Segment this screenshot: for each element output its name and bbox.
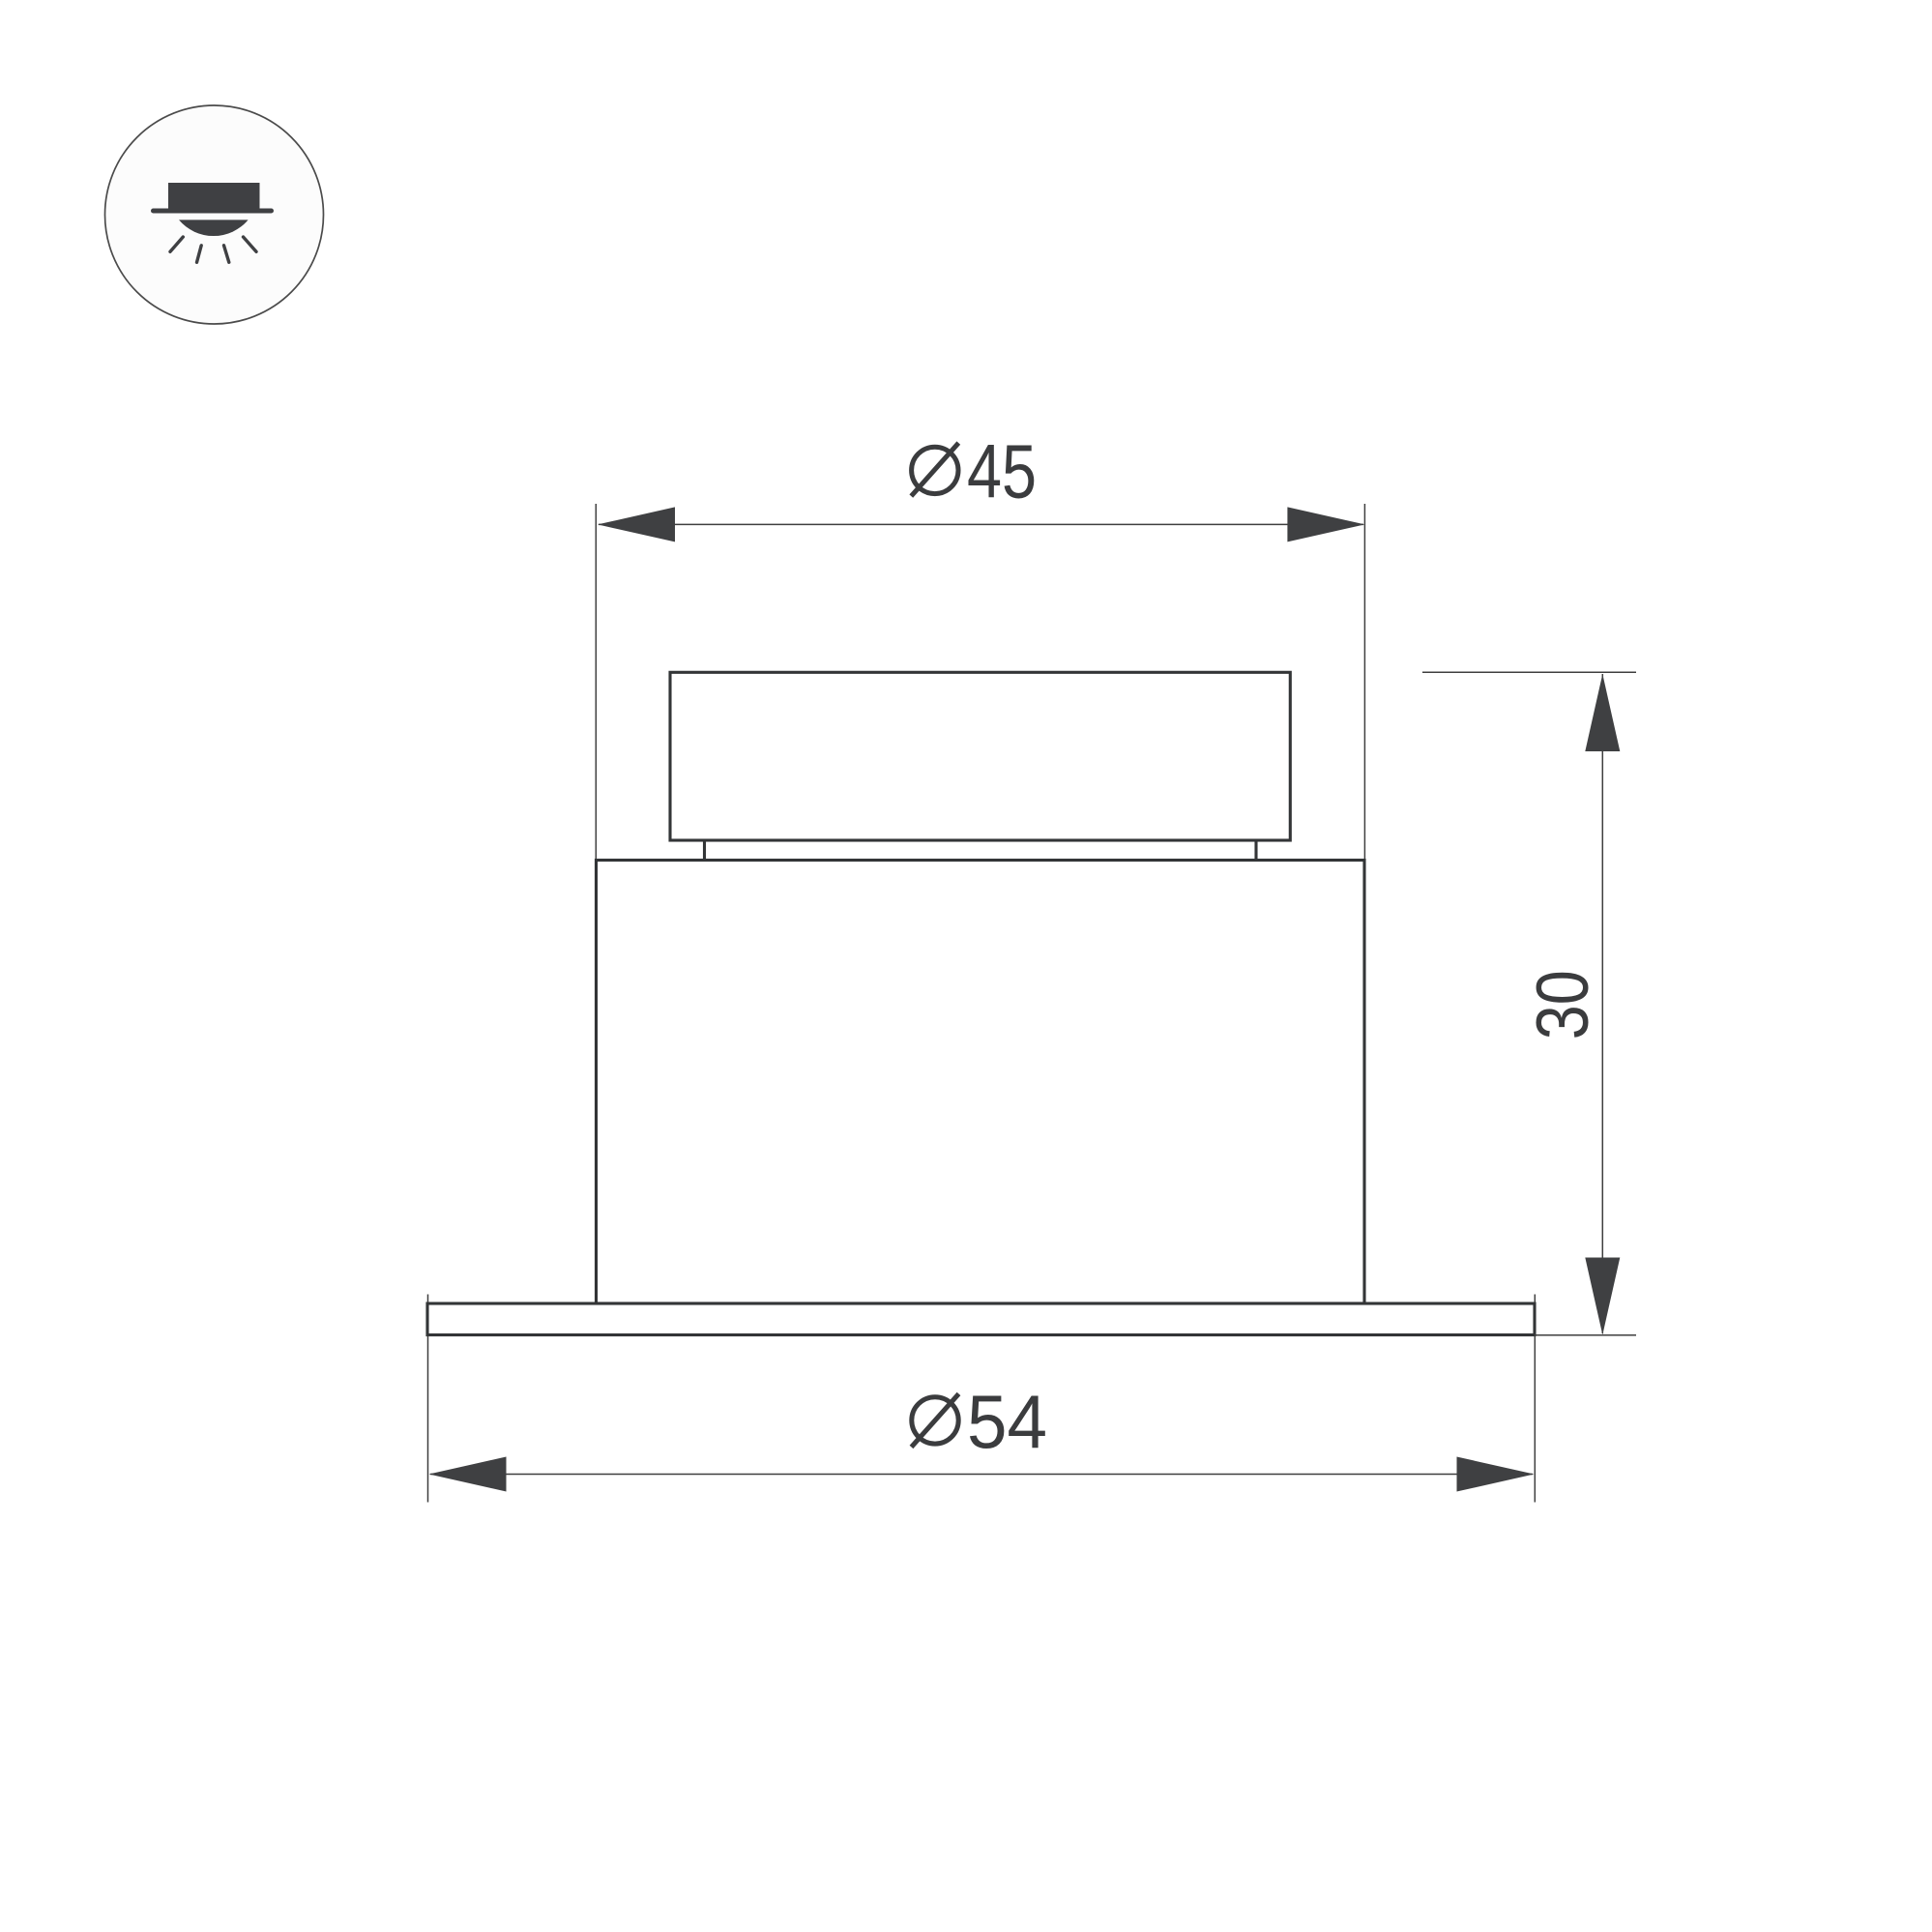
svg-text:30: 30 — [1522, 970, 1604, 1039]
svg-text:54: 54 — [967, 1379, 1047, 1464]
svg-text:45: 45 — [967, 428, 1037, 514]
